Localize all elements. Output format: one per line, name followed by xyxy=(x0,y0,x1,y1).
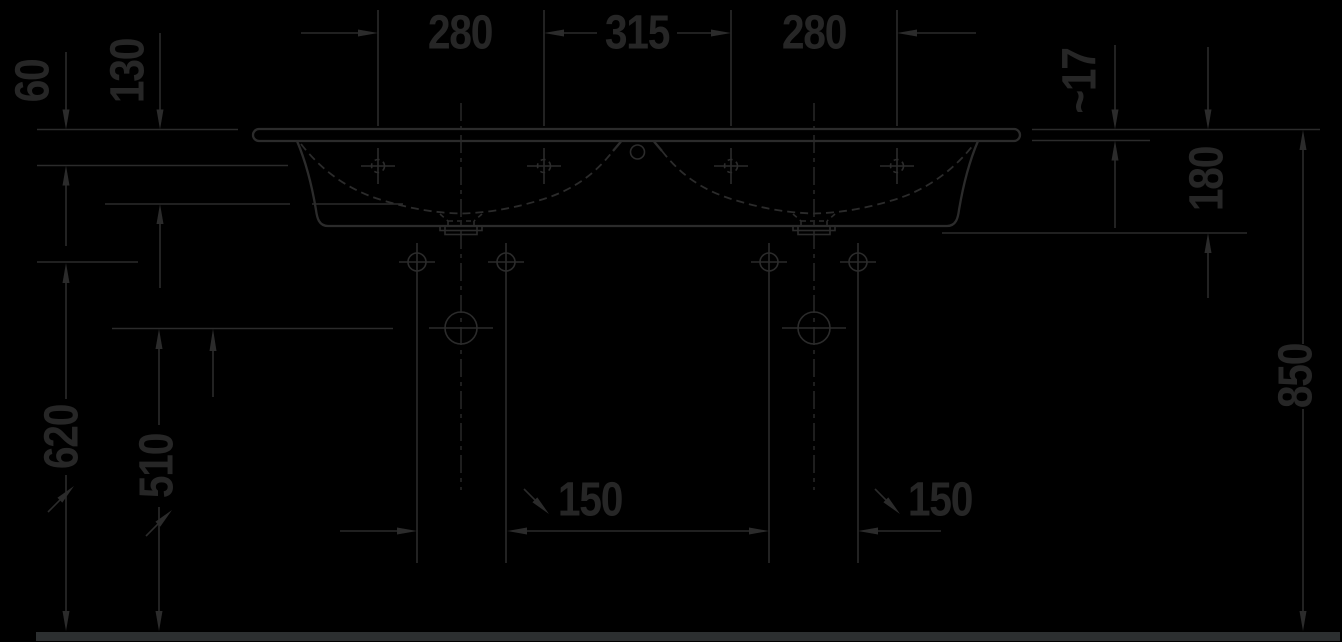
dim-floor-to-fixing-holes: 620 xyxy=(36,263,89,631)
dim-label-850: 850 xyxy=(1270,344,1323,408)
technical-drawing-canvas: 280 315 280 60 130 620 xyxy=(0,0,1342,642)
dim-rim-to-taphole: 60 xyxy=(7,52,70,246)
left-extension-lines xyxy=(37,130,403,329)
dim-top-tap-spacing: 280 315 280 xyxy=(301,7,976,126)
right-extension-lines xyxy=(942,130,1320,234)
dim-label-280-right: 280 xyxy=(782,7,846,60)
basin-body-outline xyxy=(297,141,978,226)
dim-floor-to-rim: 850 xyxy=(1270,130,1323,631)
dim-label-130: 130 xyxy=(102,39,155,103)
dim-label-17: ~17 xyxy=(1054,48,1107,113)
saddle-slope-left xyxy=(613,142,621,152)
dim-label-150-left: 150 xyxy=(558,474,622,527)
dim-label-150-right: 150 xyxy=(908,474,972,527)
dim-bowl-depth: 130 xyxy=(102,33,164,288)
sink-front-elevation xyxy=(253,103,1020,563)
dim-floor-to-siphon: 510 xyxy=(131,329,217,631)
overflow-hole xyxy=(631,145,645,159)
dim-rim-thickness: ~17 xyxy=(1054,45,1119,228)
dim-drain-offset-left: 150 xyxy=(340,474,683,535)
dim-label-180: 180 xyxy=(1181,147,1234,211)
tap-hole-2 xyxy=(527,148,561,184)
saddle-slope-right xyxy=(654,142,662,152)
dim-drain-offset-right: 150 xyxy=(683,474,972,535)
reference-arrow xyxy=(210,329,217,351)
dim-rim-to-underside: 180 xyxy=(1181,47,1234,298)
tap-hole-1 xyxy=(361,148,395,184)
rim-bar xyxy=(253,129,1020,141)
bowl-outline-right-dashed xyxy=(662,144,974,214)
dim-label-280-left: 280 xyxy=(428,7,492,60)
arrowhead xyxy=(358,30,378,37)
tap-hole-3 xyxy=(714,148,748,184)
bowl-outline-left-dashed xyxy=(301,144,613,214)
washbasin-dimension-drawing: 280 315 280 60 130 620 xyxy=(0,0,1342,642)
dim-label-510: 510 xyxy=(131,434,184,498)
floor-line xyxy=(36,632,1340,641)
dim-label-315: 315 xyxy=(605,7,670,60)
dim-label-620: 620 xyxy=(36,405,89,469)
tap-hole-4 xyxy=(880,148,914,184)
dim-label-60: 60 xyxy=(7,60,60,103)
